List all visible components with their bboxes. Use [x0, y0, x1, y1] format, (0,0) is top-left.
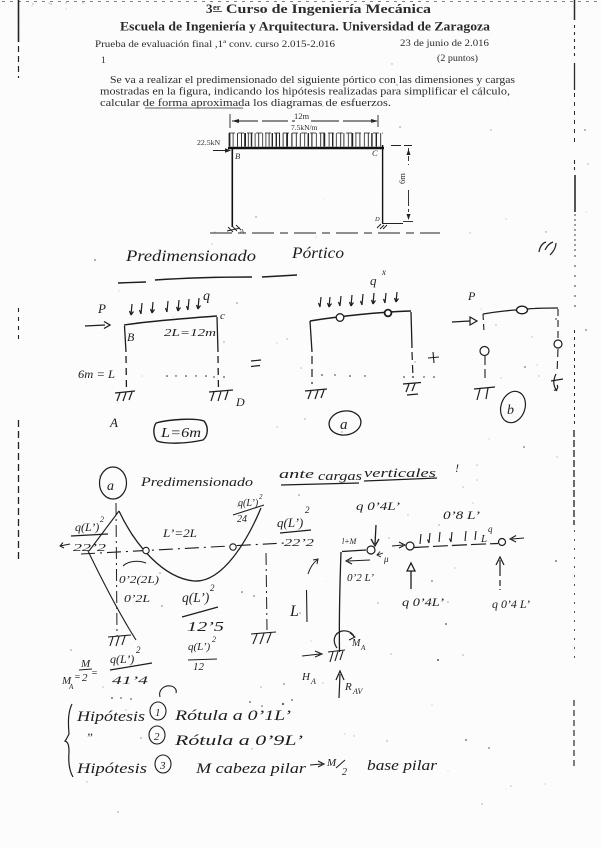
svg-text:verticales: verticales [364, 465, 436, 480]
svg-text:R: R [344, 681, 352, 693]
svg-text:μ: μ [383, 554, 389, 564]
svg-text:H: H [301, 671, 311, 683]
svg-text:=: = [91, 668, 98, 679]
svg-text:41’4: 41’4 [112, 673, 148, 687]
svg-text:er: er [213, 2, 221, 12]
svg-text:Pórtico: Pórtico [291, 245, 344, 262]
svg-text:M: M [80, 658, 91, 670]
svg-text:0’2L: 0’2L [124, 593, 150, 605]
svg-text:Prueba de evaluación final ,1ª: Prueba de evaluación final ,1ª conv. cur… [95, 39, 335, 50]
svg-text:2: 2 [136, 645, 141, 655]
svg-text:1: 1 [101, 56, 106, 66]
svg-text:2: 2 [154, 731, 160, 743]
svg-text:b: b [507, 403, 514, 418]
svg-text:Rótula a 0’9L’: Rótula a 0’9L’ [174, 733, 303, 749]
svg-text:cargas: cargas [318, 468, 362, 483]
svg-text:Rótula a 0’1L’: Rótula a 0’1L’ [174, 708, 291, 724]
svg-text:!: ! [455, 461, 459, 475]
svg-text:Predimensionado: Predimensionado [125, 248, 256, 265]
svg-text:D: D [374, 216, 380, 223]
svg-text:AV: AV [352, 687, 363, 696]
svg-text:2: 2 [82, 672, 88, 684]
svg-text:l+M: l+M [342, 537, 358, 546]
svg-text:q(L’): q(L’) [188, 641, 211, 653]
svg-text:Hipótesis: Hipótesis [76, 761, 147, 777]
svg-text:12m: 12m [294, 111, 310, 121]
svg-text:Curso de Ingeniería Mecánica: Curso de Ingeniería Mecánica [226, 1, 432, 16]
svg-text:q(L’): q(L’) [182, 590, 210, 605]
svg-text:A: A [109, 415, 118, 430]
svg-text:2: 2 [305, 505, 310, 515]
svg-text:q 0’4L’: q 0’4L’ [356, 499, 400, 513]
svg-text:a: a [340, 417, 348, 433]
svg-text:q: q [370, 273, 377, 288]
svg-text:mostradas en la figura, indica: mostradas en la figura, indicando los hi… [100, 87, 510, 98]
svg-text:=: = [74, 672, 81, 683]
svg-text:1: 1 [155, 707, 161, 719]
svg-text:2: 2 [210, 583, 215, 593]
svg-text:2: 2 [212, 635, 216, 644]
svg-text:L’=2L: L’=2L [162, 526, 197, 540]
svg-text:M: M [326, 757, 337, 769]
svg-text:q: q [203, 289, 210, 304]
svg-text:A: A [239, 228, 244, 235]
svg-text:A: A [68, 683, 74, 691]
svg-text:2: 2 [342, 767, 347, 778]
svg-text:7.5kN/m: 7.5kN/m [291, 123, 318, 132]
svg-text:Predimensionado: Predimensionado [140, 474, 254, 489]
svg-text:q(L’): q(L’) [277, 515, 303, 530]
svg-text:12’5: 12’5 [187, 619, 224, 634]
svg-text:q: q [488, 524, 493, 534]
svg-text:q(L’): q(L’) [75, 520, 99, 534]
svg-text:ante: ante [279, 466, 314, 481]
svg-text:c: c [220, 310, 225, 322]
svg-text:M: M [351, 638, 361, 649]
svg-text:0’2(2L): 0’2(2L) [119, 574, 159, 586]
svg-text:24: 24 [237, 514, 247, 525]
svg-text:6m: 6m [397, 173, 407, 184]
svg-text:23 de junio de 2.016: 23 de junio de 2.016 [400, 38, 489, 49]
svg-text:22’2: 22’2 [73, 542, 107, 554]
svg-text:q 0’4 L’: q 0’4 L’ [492, 597, 530, 611]
svg-text:Hipótesis: Hipótesis [76, 709, 145, 725]
svg-text:M cabeza pilar: M cabeza pilar [195, 761, 306, 777]
svg-text:3: 3 [159, 760, 166, 772]
svg-text:B: B [127, 330, 135, 344]
svg-text:P: P [97, 301, 106, 316]
svg-text:’’: ’’ [86, 730, 93, 744]
svg-text:12: 12 [193, 661, 205, 673]
svg-text:L: L [289, 603, 299, 620]
svg-text:base pilar: base pilar [367, 758, 437, 774]
svg-text:0’2 L’: 0’2 L’ [347, 572, 374, 584]
svg-text:3: 3 [206, 1, 213, 16]
svg-text:x: x [381, 267, 386, 277]
svg-text:22’2: 22’2 [284, 537, 315, 549]
svg-text:q 0’4L’: q 0’4L’ [402, 595, 444, 609]
svg-text:Escuela de Ingeniería y Arquit: Escuela de Ingeniería y Arquitectura. Un… [120, 20, 491, 34]
svg-text:Se va a realizar el predimensi: Se va a realizar el predimensionado del … [110, 75, 515, 86]
svg-text:A: A [310, 677, 316, 686]
svg-text:A: A [360, 644, 366, 652]
svg-text:0’8 L’: 0’8 L’ [443, 508, 480, 522]
svg-text:C: C [372, 148, 378, 158]
svg-text:2: 2 [100, 515, 104, 524]
svg-text:22.5kN: 22.5kN [197, 138, 221, 147]
svg-text:L: L [480, 533, 487, 545]
svg-text:calcular de forma aproximada l: calcular de forma aproximada los diagram… [100, 98, 391, 109]
svg-text:B: B [235, 151, 240, 161]
svg-text:2L=12m: 2L=12m [164, 327, 216, 339]
svg-text:D: D [235, 395, 245, 409]
svg-text:L=6m: L=6m [160, 426, 201, 441]
svg-text:P: P [467, 289, 476, 303]
svg-text:(2 puntos): (2 puntos) [437, 53, 478, 64]
svg-text:q(L’): q(L’) [110, 652, 134, 666]
svg-text:a: a [107, 479, 114, 494]
svg-text:6m = L: 6m = L [78, 367, 115, 381]
svg-text:2: 2 [259, 493, 263, 501]
